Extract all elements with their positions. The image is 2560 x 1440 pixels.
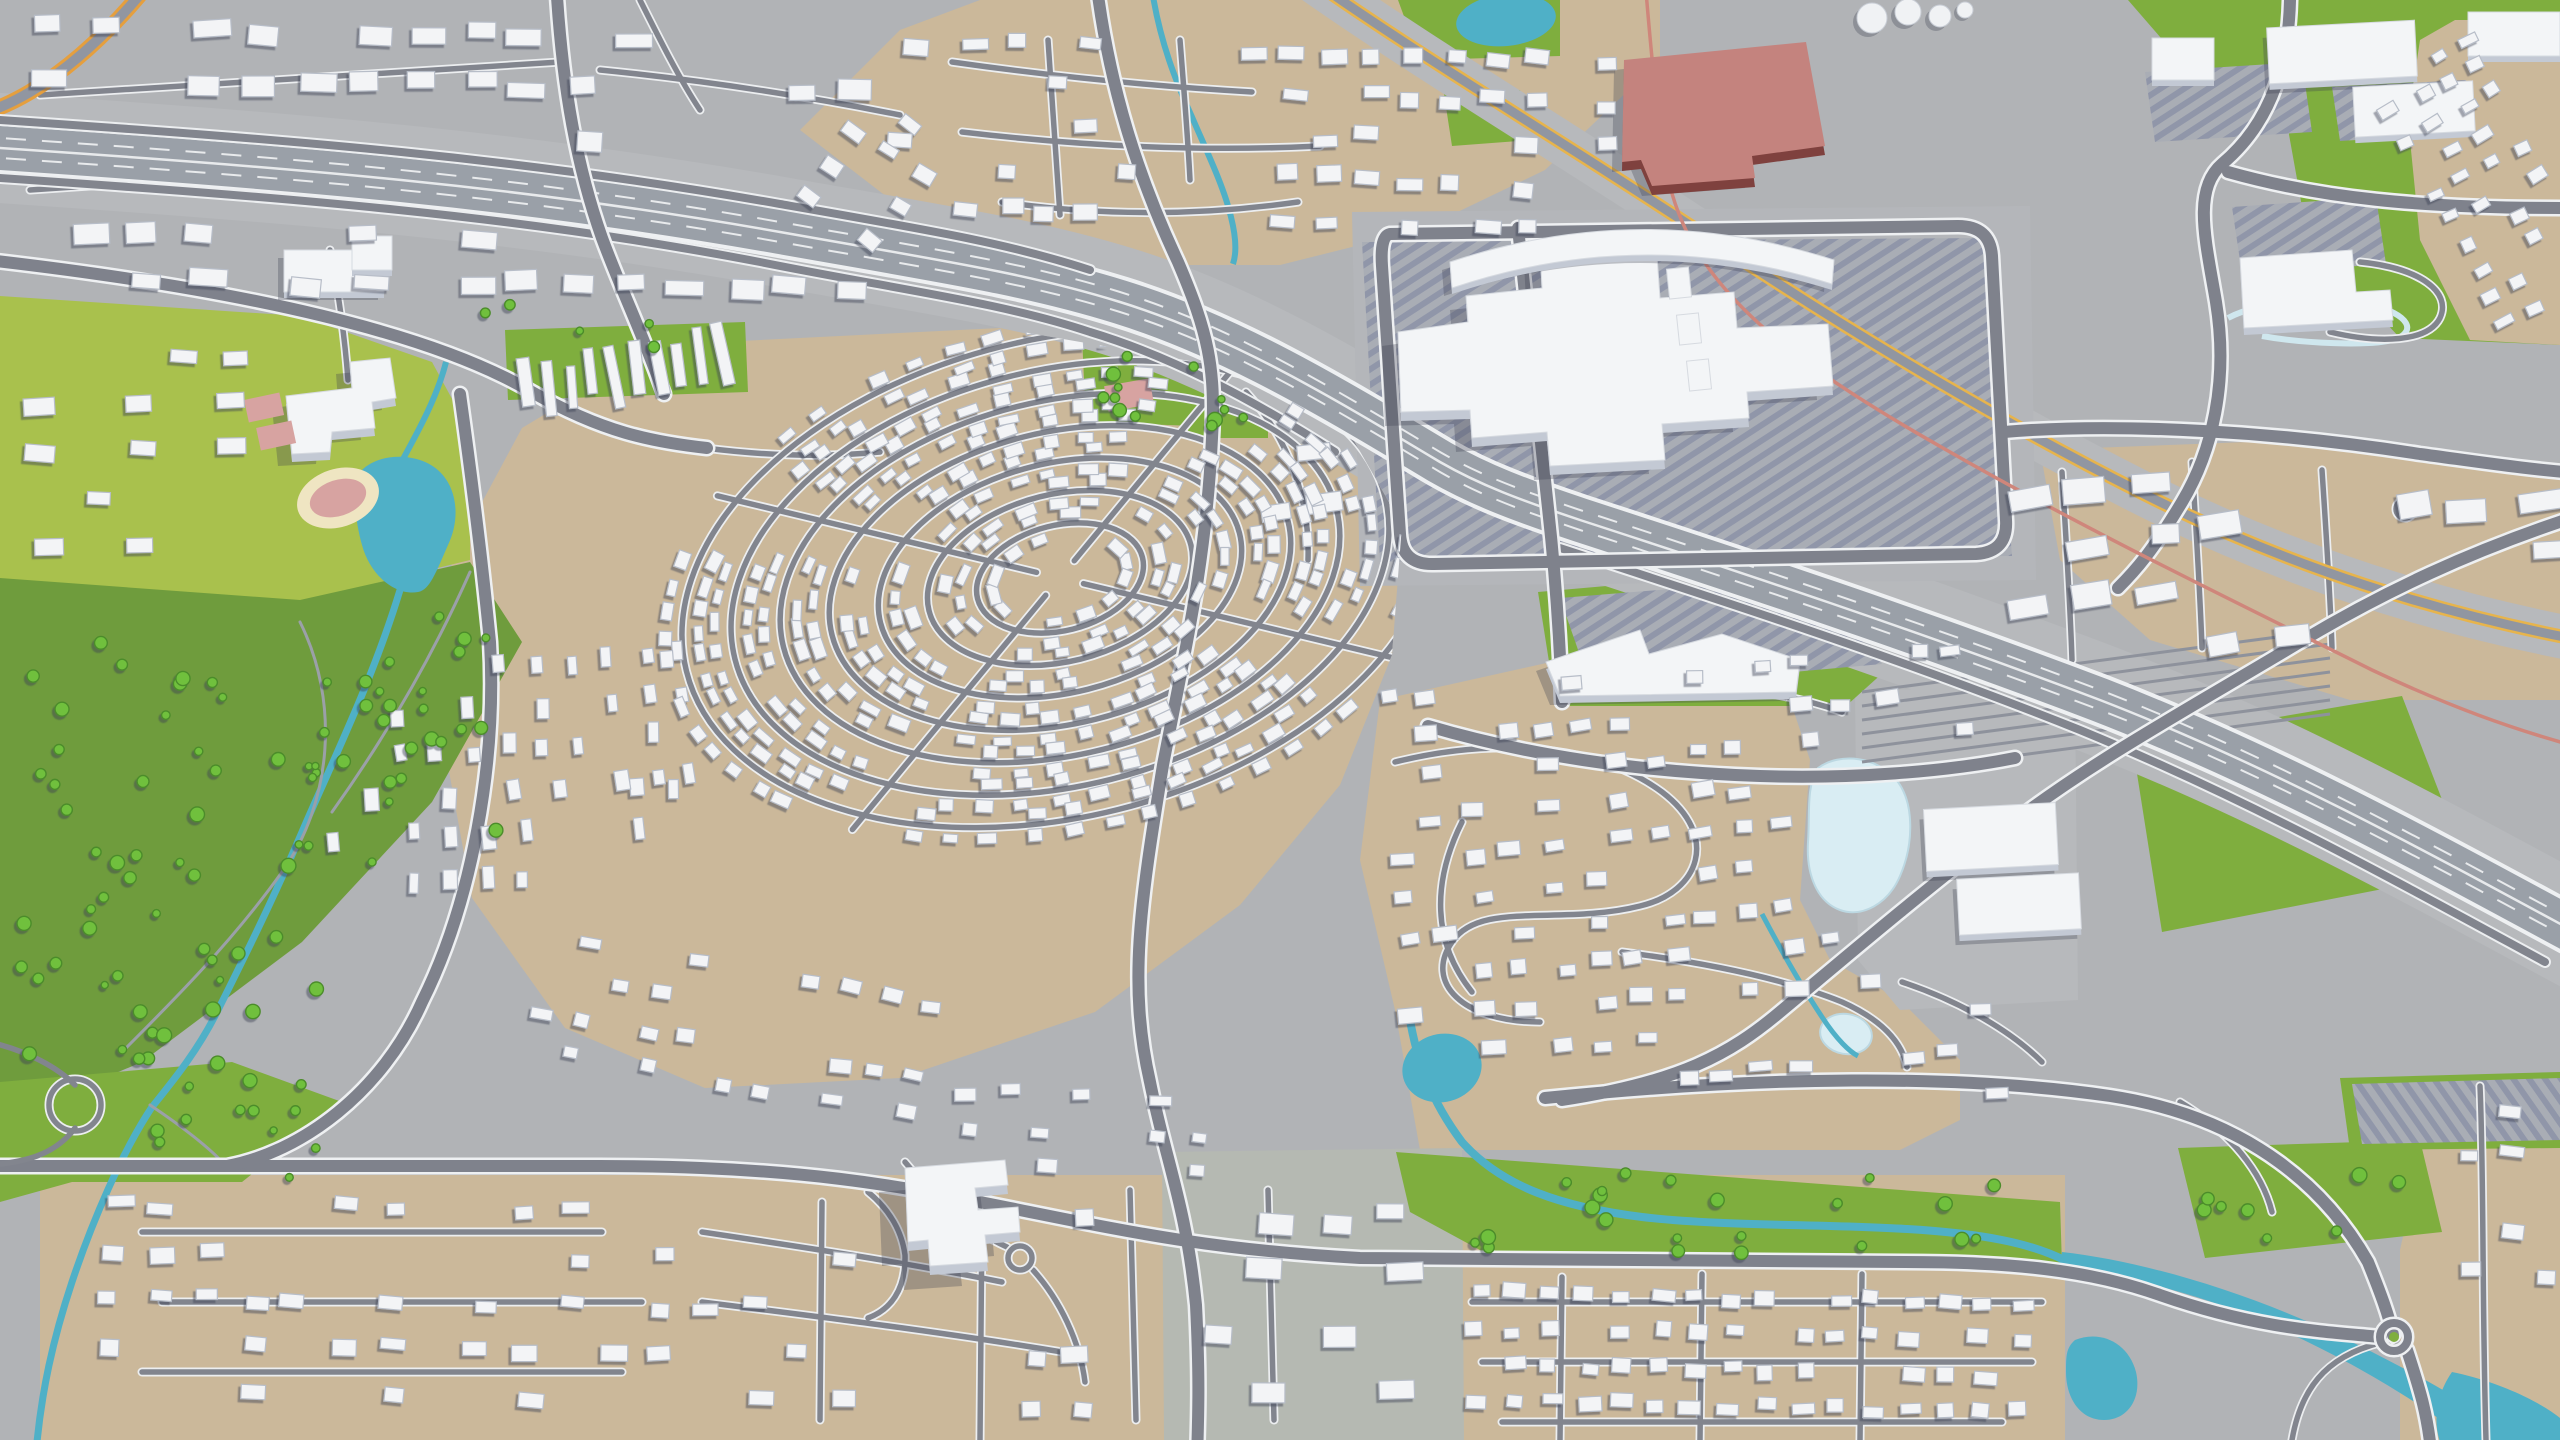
house xyxy=(1394,890,1412,904)
house xyxy=(1912,644,1928,657)
house xyxy=(1432,925,1458,942)
house xyxy=(188,76,220,96)
house xyxy=(1798,1328,1814,1342)
house xyxy=(1610,828,1633,842)
house xyxy=(693,1304,719,1316)
house xyxy=(1043,434,1059,449)
house xyxy=(245,1336,267,1352)
house xyxy=(1639,1032,1658,1042)
tree xyxy=(181,1114,191,1124)
tree xyxy=(1098,392,1109,403)
house xyxy=(1587,871,1607,886)
house xyxy=(1440,175,1458,191)
house xyxy=(571,1255,589,1268)
house xyxy=(1316,217,1337,229)
house xyxy=(1687,671,1703,684)
house xyxy=(1000,712,1020,726)
tree xyxy=(385,657,394,666)
house xyxy=(380,1337,406,1350)
house xyxy=(1612,1292,1629,1303)
house xyxy=(1686,1290,1702,1301)
tree xyxy=(50,957,62,969)
house xyxy=(515,1206,534,1220)
house xyxy=(1474,1000,1495,1016)
tree xyxy=(131,850,142,861)
house xyxy=(1939,1294,1962,1310)
house xyxy=(709,644,722,659)
house xyxy=(1560,964,1576,976)
house xyxy=(1937,1403,1954,1418)
house xyxy=(955,595,966,610)
tree xyxy=(337,755,351,769)
tree xyxy=(296,1080,306,1090)
tree xyxy=(1239,413,1248,422)
tree xyxy=(384,776,396,788)
house xyxy=(1821,932,1839,944)
house xyxy=(1189,1164,1204,1176)
house xyxy=(1499,722,1519,739)
house xyxy=(614,769,631,791)
tree xyxy=(194,747,202,755)
house xyxy=(1656,1320,1672,1337)
house xyxy=(1277,163,1298,180)
house xyxy=(1030,680,1044,693)
house xyxy=(1074,1402,1093,1418)
house xyxy=(693,600,708,617)
tree xyxy=(359,675,372,688)
house xyxy=(126,221,157,243)
house xyxy=(1504,1328,1519,1339)
house xyxy=(1078,725,1094,740)
house xyxy=(689,954,709,968)
house xyxy=(1612,1358,1631,1374)
house xyxy=(1079,36,1101,49)
house xyxy=(1582,1363,1599,1375)
house xyxy=(743,609,753,626)
tree xyxy=(1113,403,1126,416)
house xyxy=(694,626,703,642)
tree xyxy=(1833,1198,1843,1208)
house xyxy=(132,273,161,289)
tree xyxy=(87,905,96,914)
house xyxy=(994,737,1012,746)
house xyxy=(108,1195,135,1207)
house xyxy=(1862,1289,1879,1304)
tree xyxy=(83,921,97,935)
house xyxy=(1611,1326,1630,1338)
house xyxy=(809,590,819,610)
house xyxy=(1554,1037,1574,1053)
house xyxy=(531,656,543,673)
house xyxy=(1323,1214,1352,1234)
house xyxy=(1937,1044,1958,1057)
house xyxy=(758,626,769,642)
house xyxy=(1903,1051,1925,1065)
house xyxy=(1054,771,1070,785)
house xyxy=(1401,932,1421,946)
house xyxy=(364,788,379,811)
house xyxy=(1579,1396,1602,1412)
house xyxy=(600,647,611,667)
house xyxy=(1008,33,1025,47)
tree xyxy=(2263,1234,2272,1243)
house xyxy=(73,223,110,245)
house xyxy=(1598,57,1617,70)
tree xyxy=(378,714,390,726)
tree xyxy=(376,687,384,695)
house xyxy=(34,538,63,555)
house xyxy=(444,826,458,847)
house xyxy=(833,1390,856,1407)
tree xyxy=(1710,1193,1724,1207)
tree xyxy=(248,1105,259,1116)
house xyxy=(903,38,929,56)
house xyxy=(1956,722,1973,735)
house xyxy=(1986,1087,2009,1099)
house xyxy=(1685,1364,1706,1379)
house xyxy=(1728,786,1751,800)
house xyxy=(98,1291,116,1304)
house xyxy=(537,699,549,719)
house xyxy=(1678,1401,1701,1415)
tree xyxy=(1130,411,1140,421)
house xyxy=(1737,820,1753,833)
house xyxy=(1973,1298,1991,1310)
tree xyxy=(246,1004,260,1018)
house xyxy=(1448,50,1466,63)
house xyxy=(462,1342,486,1356)
tree xyxy=(117,659,128,670)
house xyxy=(354,275,389,291)
house xyxy=(1073,1089,1090,1100)
house xyxy=(1250,525,1264,540)
house xyxy=(1422,764,1442,779)
house xyxy=(1074,119,1097,133)
house xyxy=(1515,1002,1537,1017)
house xyxy=(1774,898,1793,913)
house xyxy=(32,70,67,87)
house xyxy=(1688,1324,1708,1341)
house xyxy=(1141,804,1157,819)
house xyxy=(563,274,593,293)
tree xyxy=(454,646,465,657)
tree xyxy=(198,943,209,954)
house xyxy=(1031,1127,1049,1138)
house xyxy=(1481,1040,1506,1055)
house xyxy=(1524,48,1549,65)
house xyxy=(1278,46,1304,60)
house xyxy=(1065,801,1083,816)
house xyxy=(1108,463,1128,477)
house xyxy=(2501,1223,2524,1240)
house xyxy=(647,1346,671,1362)
house xyxy=(1365,540,1378,555)
house xyxy=(384,1387,404,1403)
house xyxy=(715,1078,732,1093)
house xyxy=(1739,903,1758,919)
house xyxy=(518,1392,544,1409)
house xyxy=(223,351,248,366)
house xyxy=(1592,951,1613,966)
house xyxy=(1221,547,1230,565)
tree xyxy=(396,773,406,783)
house xyxy=(1546,882,1563,893)
house xyxy=(577,131,603,153)
tree xyxy=(1218,396,1225,403)
house xyxy=(1610,1393,1633,1408)
tree xyxy=(2352,1168,2367,1183)
tree xyxy=(1122,351,1132,361)
house xyxy=(409,873,419,893)
tree xyxy=(309,982,323,996)
house xyxy=(2062,476,2106,505)
house xyxy=(1610,718,1629,731)
house xyxy=(1789,696,1812,712)
tree xyxy=(320,728,330,738)
house xyxy=(1062,676,1077,688)
house xyxy=(1060,1346,1088,1364)
house xyxy=(937,574,953,594)
tree xyxy=(458,632,471,645)
house xyxy=(676,1027,695,1043)
tree xyxy=(176,858,184,866)
house xyxy=(1598,137,1617,151)
house xyxy=(989,680,1006,692)
house xyxy=(562,1202,589,1214)
tree xyxy=(243,1074,257,1088)
house xyxy=(1246,1257,1283,1280)
house xyxy=(1013,799,1028,811)
tree xyxy=(190,807,205,822)
house xyxy=(349,71,378,91)
tree xyxy=(16,961,28,973)
house xyxy=(1537,799,1560,811)
house xyxy=(2152,524,2180,544)
tree xyxy=(2332,1226,2342,1236)
house xyxy=(1397,1007,1423,1024)
house xyxy=(659,631,672,646)
house xyxy=(644,684,658,703)
house xyxy=(1742,982,1758,995)
house xyxy=(2013,1300,2034,1311)
tree xyxy=(291,1106,301,1116)
tree xyxy=(270,931,283,944)
house xyxy=(241,1384,266,1399)
house xyxy=(412,28,446,44)
house xyxy=(1026,342,1048,357)
house xyxy=(1006,671,1023,682)
tree xyxy=(124,872,136,884)
house xyxy=(1506,1394,1522,1408)
house xyxy=(1029,808,1047,819)
tree xyxy=(91,847,101,857)
house xyxy=(1252,1383,1285,1403)
tree xyxy=(188,869,200,881)
house xyxy=(1722,1294,1741,1308)
house xyxy=(359,26,392,46)
tree xyxy=(271,753,285,767)
house xyxy=(200,1243,224,1258)
house xyxy=(2461,1151,2478,1161)
house xyxy=(1573,1286,1593,1301)
house xyxy=(865,1063,883,1077)
house xyxy=(1414,690,1435,706)
house xyxy=(1622,950,1642,966)
house xyxy=(1497,840,1521,856)
tree xyxy=(157,1028,172,1043)
house xyxy=(1792,1403,1815,1415)
house xyxy=(1790,655,1807,666)
house xyxy=(651,1303,669,1318)
house xyxy=(1317,165,1342,182)
house xyxy=(1354,170,1379,186)
house xyxy=(1313,135,1337,147)
house xyxy=(1757,1365,1773,1381)
house xyxy=(651,984,672,1000)
house xyxy=(1254,543,1263,561)
house xyxy=(917,807,936,821)
tree xyxy=(1114,383,1122,391)
tree xyxy=(1207,420,1218,431)
house xyxy=(1974,1371,1998,1386)
house xyxy=(1475,962,1492,978)
house xyxy=(1414,725,1437,742)
house xyxy=(1630,987,1653,1002)
tree xyxy=(482,634,490,642)
house xyxy=(1594,1041,1612,1052)
house xyxy=(821,1093,843,1105)
tree xyxy=(1562,1178,1571,1187)
house xyxy=(535,739,548,756)
house xyxy=(1404,48,1423,63)
house xyxy=(1716,1403,1738,1415)
house xyxy=(511,1345,537,1361)
house xyxy=(1026,702,1040,715)
house xyxy=(387,1203,405,1215)
house xyxy=(1665,914,1685,926)
tree xyxy=(1955,1232,1969,1246)
house xyxy=(758,607,769,622)
house xyxy=(1270,215,1295,229)
house xyxy=(1362,495,1377,513)
house xyxy=(710,612,719,631)
house xyxy=(1652,1289,1676,1303)
house xyxy=(983,745,997,758)
house xyxy=(100,1339,119,1357)
tree xyxy=(419,704,428,713)
house xyxy=(1609,792,1629,809)
house xyxy=(921,1000,941,1013)
house xyxy=(1758,1397,1777,1410)
house xyxy=(2015,1334,2032,1347)
tree xyxy=(155,1137,165,1147)
tree xyxy=(112,971,123,982)
house xyxy=(665,280,704,295)
house xyxy=(1540,1286,1559,1299)
house xyxy=(409,823,420,840)
tree xyxy=(1988,1179,2001,1192)
tree xyxy=(1620,1168,1631,1179)
tree xyxy=(61,804,72,815)
tree xyxy=(217,976,224,983)
house xyxy=(196,1289,217,1300)
tree xyxy=(435,612,444,621)
house xyxy=(102,1245,124,1261)
tree xyxy=(645,320,653,328)
house xyxy=(1748,1060,1772,1072)
tree xyxy=(1599,1213,1613,1227)
house xyxy=(2131,472,2170,494)
house xyxy=(2499,1105,2522,1119)
house xyxy=(633,817,645,840)
house xyxy=(1540,1359,1555,1372)
tree xyxy=(54,744,64,754)
house xyxy=(890,591,900,605)
house xyxy=(1860,974,1881,989)
tree xyxy=(1597,1186,1606,1195)
house xyxy=(242,76,275,97)
tree xyxy=(99,892,109,902)
house xyxy=(1647,756,1665,769)
tree xyxy=(2216,1201,2226,1211)
house xyxy=(1502,1282,1526,1299)
house xyxy=(943,834,958,843)
house xyxy=(1362,49,1379,65)
house xyxy=(475,1301,496,1313)
house xyxy=(1078,464,1098,475)
tree xyxy=(207,677,217,687)
house xyxy=(1204,1325,1232,1345)
house xyxy=(1903,1366,1926,1382)
house xyxy=(1709,1070,1732,1082)
house xyxy=(442,788,457,809)
house xyxy=(507,82,545,98)
house xyxy=(1080,497,1099,506)
tree xyxy=(312,762,319,769)
house xyxy=(1514,927,1534,939)
tree xyxy=(405,742,417,754)
house xyxy=(939,799,954,811)
tree xyxy=(153,910,161,918)
house xyxy=(443,870,458,890)
tree xyxy=(95,636,108,649)
tree xyxy=(304,841,313,850)
tree xyxy=(36,769,47,780)
house xyxy=(378,1295,403,1310)
house xyxy=(1118,164,1136,180)
house xyxy=(1519,219,1536,233)
house xyxy=(573,1012,590,1029)
house xyxy=(1048,76,1067,89)
house xyxy=(521,819,534,842)
house xyxy=(1476,891,1494,904)
house xyxy=(1439,96,1461,110)
house xyxy=(1073,399,1093,413)
house xyxy=(618,274,645,290)
house xyxy=(977,833,996,844)
house xyxy=(334,1196,358,1211)
house xyxy=(1967,1328,1989,1344)
house xyxy=(184,223,213,243)
city-render xyxy=(0,0,2560,1440)
house xyxy=(896,1103,917,1120)
house xyxy=(150,1247,175,1264)
tree xyxy=(1672,1245,1685,1258)
house xyxy=(1798,1363,1814,1378)
house xyxy=(1028,828,1043,841)
tree xyxy=(1737,1232,1746,1241)
house xyxy=(1668,947,1691,963)
